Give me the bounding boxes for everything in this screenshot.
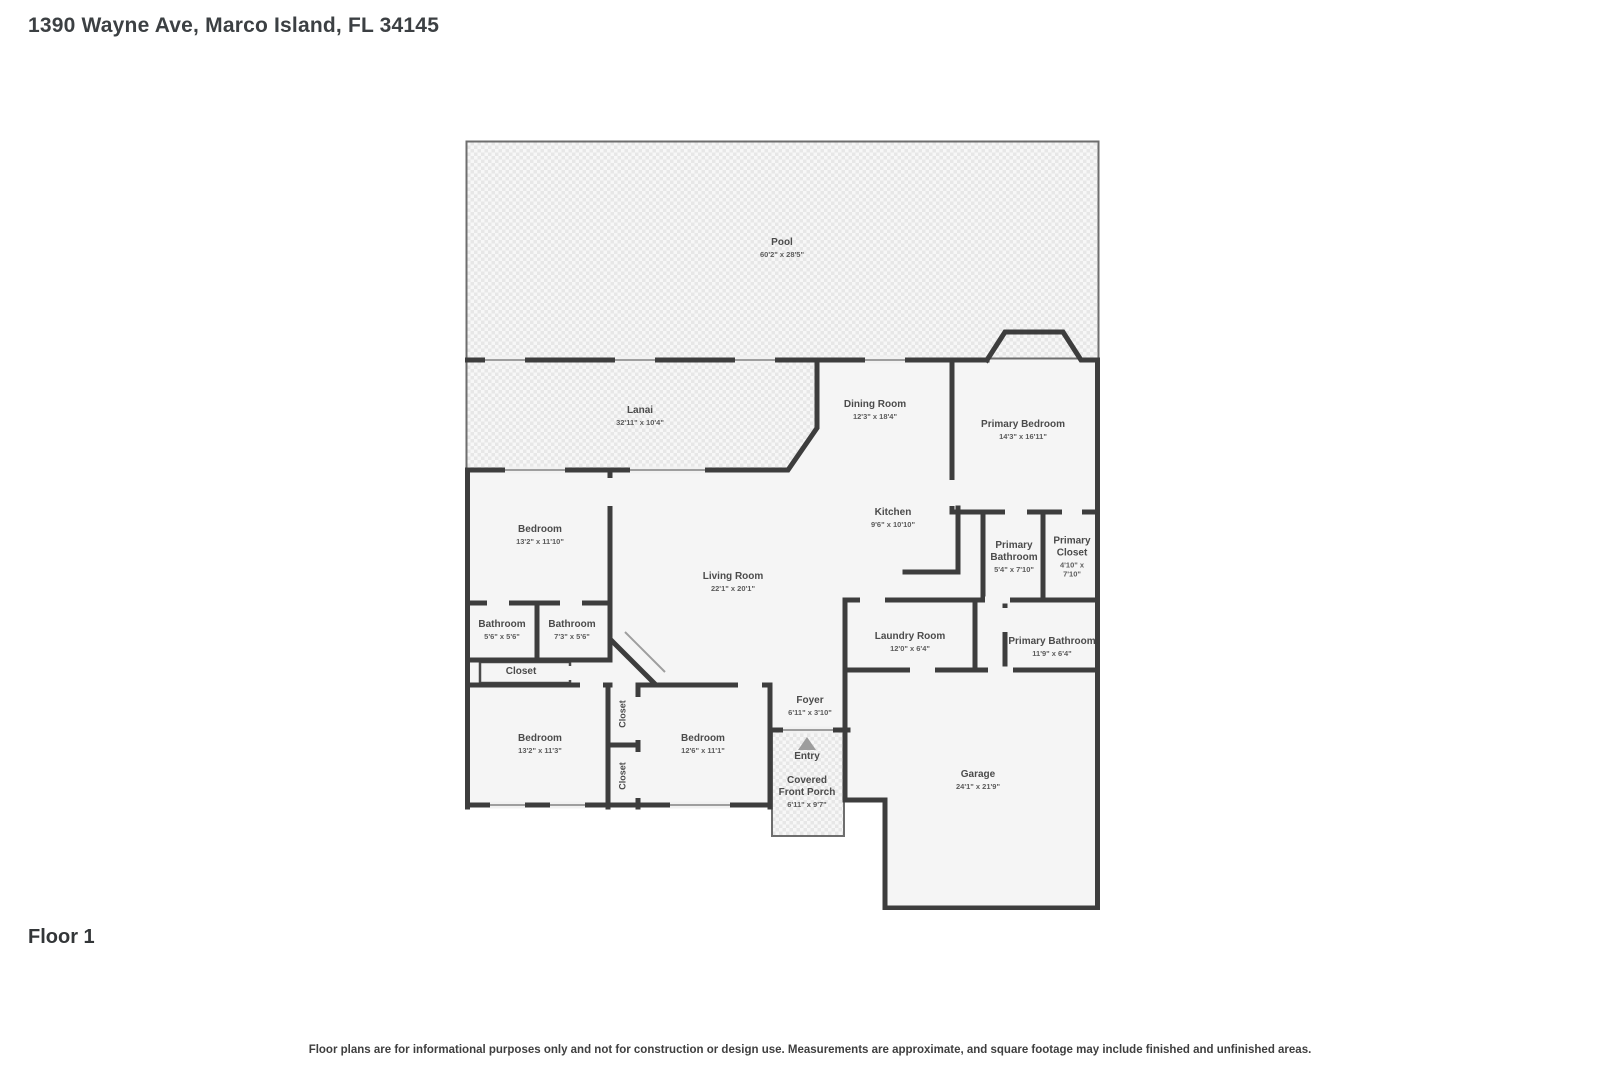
room-label-garage: Garage 24'1" x 21'9" (956, 769, 1000, 791)
room-label-bathroom-hall: Bathroom 7'3" x 5'6" (548, 619, 595, 641)
floor-number-label: Floor 1 (28, 926, 95, 949)
room-label-lanai: Lanai 32'11" x 10'4" (616, 405, 664, 427)
room-label-primary-bathroom-upper: Primary Bathroom 5'4" x 7'10" (985, 540, 1043, 574)
room-label-bedroom-mid-left: Bedroom 13'2" x 11'10" (516, 524, 564, 546)
room-label-primary-closet: Primary Closet 4'10" x 7'10" (1050, 536, 1094, 579)
room-label-living-room: Living Room 22'1" x 20'1" (703, 571, 764, 593)
room-label-bathroom-small: Bathroom 5'6" x 5'6" (478, 619, 525, 641)
room-label-foyer: Foyer 6'11" x 3'10" (788, 695, 832, 717)
room-label-laundry-room: Laundry Room 12'0" x 6'4" (875, 631, 946, 653)
room-label-bedroom-bottom-mid: Bedroom 12'6" x 11'1" (681, 733, 725, 755)
room-label-closet-vertical-1: Closet (618, 700, 629, 728)
room-label-primary-bathroom-lower: Primary Bathroom 11'9" x 6'4" (1008, 636, 1095, 658)
room-label-entry: Entry (794, 751, 820, 763)
room-label-closet-vertical-2: Closet (618, 762, 629, 790)
floorplan-page: 1390 Wayne Ave, Marco Island, FL 34145 (0, 0, 1620, 1080)
disclaimer-text: Floor plans are for informational purpos… (0, 1044, 1620, 1056)
room-label-bedroom-bottom-left: Bedroom 13'2" x 11'3" (518, 733, 562, 755)
page-title: 1390 Wayne Ave, Marco Island, FL 34145 (28, 14, 439, 38)
room-label-kitchen: Kitchen 9'6" x 10'10" (871, 507, 915, 529)
floorplan-canvas: Pool 60'2" x 28'5" Lanai 32'11" x 10'4" … (465, 140, 1100, 910)
entry-direction-icon (798, 737, 816, 750)
room-label-closet-hall: Closet (506, 666, 537, 678)
room-label-primary-bedroom: Primary Bedroom 14'3" x 16'11" (981, 419, 1065, 441)
room-label-dining-room: Dining Room 12'3" x 18'4" (844, 399, 906, 421)
room-label-covered-front-porch: Covered Front Porch 6'11" x 9'7" (776, 775, 838, 809)
room-label-pool: Pool 60'2" x 28'5" (760, 237, 804, 259)
